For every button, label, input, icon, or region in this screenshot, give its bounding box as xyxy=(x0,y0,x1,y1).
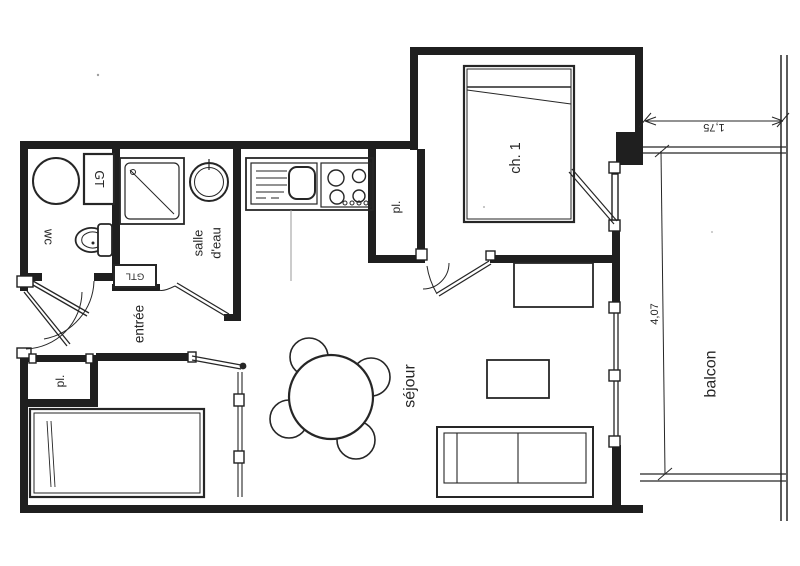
dim-text-balcony-depth: 4,07 xyxy=(649,303,661,324)
kitchen-counter xyxy=(246,158,373,210)
kitchen-sink-icon xyxy=(251,163,317,204)
floor-plan-page: wc GT salle d'eau GTL entrée pl. ch. 1 s… xyxy=(0,0,800,566)
label-sejour: séjour xyxy=(402,364,419,408)
label-gt: GT xyxy=(92,170,106,188)
label-placard-top: pl. xyxy=(389,201,403,214)
shower-icon xyxy=(120,158,184,224)
single-bed-icon xyxy=(30,409,204,497)
round-table-icon xyxy=(289,355,373,439)
sideboard-icon xyxy=(514,263,593,307)
label-chambre: ch. 1 xyxy=(508,142,524,173)
toilet-icon xyxy=(76,224,112,256)
label-salle-deau-line1: salle xyxy=(191,230,206,257)
label-salle-deau-line2: d'eau xyxy=(209,227,224,258)
bathroom-door xyxy=(159,283,229,317)
water-heater-icon xyxy=(33,158,79,204)
label-gtl: GTL xyxy=(126,271,144,282)
label-balcon: balcon xyxy=(703,350,720,397)
label-placard-bottom: pl. xyxy=(53,375,67,388)
sofa-icon xyxy=(437,427,593,497)
dim-text-balcony-width: 1,75 xyxy=(703,121,724,133)
label-wc: wc xyxy=(42,228,57,245)
label-entree: entrée xyxy=(132,305,147,343)
balcony-railing xyxy=(781,55,787,521)
coffee-table-icon xyxy=(487,360,549,398)
folding-partition xyxy=(238,372,242,497)
living-room-door xyxy=(192,356,246,369)
bedroom-door xyxy=(427,261,491,296)
front-door xyxy=(24,291,82,349)
cooktop-icon xyxy=(321,163,371,207)
bedroom-balcony-door xyxy=(569,169,618,224)
washbasin-icon xyxy=(190,159,228,201)
floor-plan-drawing: wc GT salle d'eau GTL entrée pl. ch. 1 s… xyxy=(0,0,800,566)
